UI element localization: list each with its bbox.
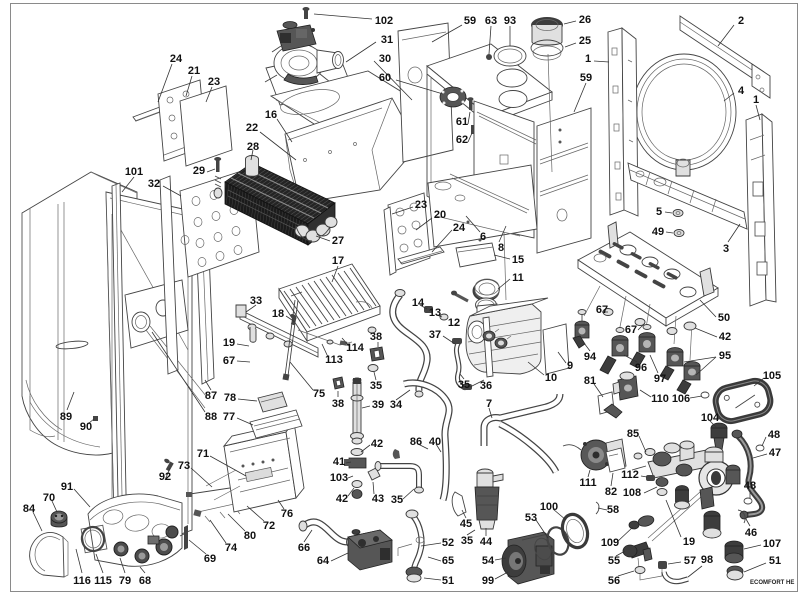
- svg-text:93: 93: [504, 15, 516, 27]
- svg-text:63: 63: [485, 15, 497, 27]
- svg-text:98: 98: [701, 554, 713, 566]
- svg-text:8: 8: [498, 242, 504, 254]
- svg-text:29: 29: [193, 165, 205, 177]
- svg-text:90: 90: [80, 421, 92, 433]
- svg-text:23: 23: [208, 76, 220, 88]
- svg-text:73: 73: [178, 460, 190, 472]
- svg-text:69: 69: [204, 553, 216, 565]
- svg-text:52: 52: [442, 537, 454, 549]
- svg-text:72: 72: [263, 520, 275, 532]
- svg-text:16: 16: [265, 109, 277, 121]
- svg-text:12: 12: [448, 317, 460, 329]
- svg-text:70: 70: [43, 492, 55, 504]
- svg-text:38: 38: [370, 331, 382, 343]
- svg-text:88: 88: [205, 411, 217, 423]
- svg-text:107: 107: [763, 538, 781, 550]
- svg-text:11: 11: [512, 272, 524, 284]
- svg-text:111: 111: [579, 477, 596, 489]
- svg-text:30: 30: [379, 53, 391, 65]
- svg-text:78: 78: [224, 392, 236, 404]
- svg-text:42: 42: [336, 493, 348, 505]
- svg-text:85: 85: [627, 428, 639, 440]
- svg-text:34: 34: [390, 399, 403, 411]
- svg-text:44: 44: [480, 536, 493, 548]
- svg-text:45: 45: [460, 518, 472, 530]
- svg-text:48: 48: [744, 480, 756, 492]
- svg-text:13: 13: [429, 307, 441, 319]
- svg-text:22: 22: [246, 122, 258, 134]
- svg-text:1: 1: [585, 53, 591, 65]
- svg-text:99: 99: [482, 575, 494, 587]
- svg-text:84: 84: [23, 503, 36, 515]
- svg-text:102: 102: [375, 15, 393, 27]
- svg-text:104: 104: [701, 412, 720, 424]
- svg-text:6: 6: [480, 231, 486, 243]
- svg-text:3: 3: [723, 243, 729, 255]
- svg-text:67: 67: [596, 304, 608, 316]
- svg-text:7: 7: [486, 398, 492, 410]
- svg-text:26: 26: [579, 14, 591, 26]
- svg-text:35: 35: [458, 379, 470, 391]
- svg-text:113: 113: [325, 354, 343, 366]
- svg-text:2: 2: [738, 15, 744, 27]
- svg-text:1: 1: [753, 94, 759, 106]
- svg-text:37: 37: [429, 329, 441, 341]
- svg-text:60: 60: [379, 72, 391, 84]
- svg-text:103: 103: [330, 472, 348, 484]
- svg-text:9: 9: [567, 360, 573, 372]
- svg-text:42: 42: [719, 331, 731, 343]
- svg-text:5: 5: [656, 206, 662, 218]
- svg-text:80: 80: [244, 530, 256, 542]
- svg-text:58: 58: [607, 504, 619, 516]
- svg-text:4: 4: [738, 85, 745, 97]
- svg-text:77: 77: [223, 411, 235, 423]
- svg-text:110: 110: [651, 393, 669, 405]
- svg-text:39: 39: [372, 399, 384, 411]
- svg-text:81: 81: [584, 375, 596, 387]
- svg-text:35: 35: [391, 494, 403, 506]
- svg-text:76: 76: [281, 508, 293, 520]
- svg-text:19: 19: [683, 536, 695, 548]
- svg-text:64: 64: [317, 555, 330, 567]
- svg-text:92: 92: [159, 471, 171, 483]
- svg-text:115: 115: [94, 575, 112, 587]
- svg-text:14: 14: [412, 297, 425, 309]
- svg-text:51: 51: [442, 575, 454, 587]
- svg-text:35: 35: [461, 535, 473, 547]
- svg-text:106: 106: [672, 393, 690, 405]
- svg-text:20: 20: [434, 209, 446, 221]
- svg-text:59: 59: [580, 72, 592, 84]
- svg-text:59: 59: [464, 15, 476, 27]
- svg-text:46: 46: [745, 527, 757, 539]
- svg-text:86: 86: [410, 436, 422, 448]
- svg-text:108: 108: [623, 487, 641, 499]
- svg-text:50: 50: [718, 312, 730, 324]
- svg-text:68: 68: [139, 575, 151, 587]
- svg-text:42: 42: [371, 438, 383, 450]
- svg-text:51: 51: [769, 555, 781, 567]
- svg-text:27: 27: [332, 235, 344, 247]
- svg-text:114: 114: [346, 342, 365, 354]
- svg-text:40: 40: [429, 436, 441, 448]
- svg-text:47: 47: [769, 447, 781, 459]
- svg-text:100: 100: [540, 501, 558, 513]
- svg-text:91: 91: [61, 481, 73, 493]
- svg-text:112: 112: [621, 469, 639, 481]
- svg-text:95: 95: [719, 350, 731, 362]
- svg-text:87: 87: [205, 390, 217, 402]
- svg-text:67: 67: [625, 324, 637, 336]
- svg-text:41: 41: [333, 456, 345, 468]
- svg-text:61: 61: [456, 116, 468, 128]
- svg-text:79: 79: [119, 575, 131, 587]
- svg-text:18: 18: [272, 308, 284, 320]
- svg-text:97: 97: [654, 373, 666, 385]
- svg-text:55: 55: [608, 555, 620, 567]
- svg-text:36: 36: [480, 380, 492, 392]
- svg-text:31: 31: [381, 34, 393, 46]
- svg-text:23: 23: [415, 199, 427, 211]
- svg-text:116: 116: [73, 575, 91, 587]
- svg-text:66: 66: [298, 542, 310, 554]
- svg-text:89: 89: [60, 411, 72, 423]
- svg-text:43: 43: [372, 493, 384, 505]
- svg-text:54: 54: [482, 555, 495, 567]
- svg-text:57: 57: [684, 555, 696, 567]
- svg-text:105: 105: [763, 370, 781, 382]
- svg-text:35: 35: [370, 380, 382, 392]
- svg-text:24: 24: [170, 53, 183, 65]
- svg-text:82: 82: [605, 486, 617, 498]
- svg-text:21: 21: [188, 65, 200, 77]
- svg-text:19: 19: [223, 337, 235, 349]
- svg-text:33: 33: [250, 295, 262, 307]
- svg-text:94: 94: [584, 351, 597, 363]
- svg-text:15: 15: [512, 254, 524, 266]
- svg-text:53: 53: [525, 512, 537, 524]
- svg-text:25: 25: [579, 35, 591, 47]
- svg-text:67: 67: [223, 355, 235, 367]
- svg-text:96: 96: [635, 362, 647, 374]
- svg-text:10: 10: [545, 372, 557, 384]
- svg-text:65: 65: [442, 555, 454, 567]
- svg-text:56: 56: [608, 575, 620, 587]
- svg-text:38: 38: [332, 398, 344, 410]
- svg-text:74: 74: [225, 542, 238, 554]
- svg-text:75: 75: [313, 388, 325, 400]
- svg-text:71: 71: [197, 448, 209, 460]
- svg-text:101: 101: [125, 166, 143, 178]
- svg-text:109: 109: [601, 537, 619, 549]
- svg-text:49: 49: [652, 226, 664, 238]
- svg-text:48: 48: [768, 429, 780, 441]
- svg-text:62: 62: [456, 134, 468, 146]
- svg-text:24: 24: [453, 222, 466, 234]
- svg-text:ECOMFORT HE: ECOMFORT HE: [750, 580, 794, 586]
- svg-text:28: 28: [247, 141, 259, 153]
- svg-text:17: 17: [332, 255, 344, 267]
- svg-text:32: 32: [148, 178, 160, 190]
